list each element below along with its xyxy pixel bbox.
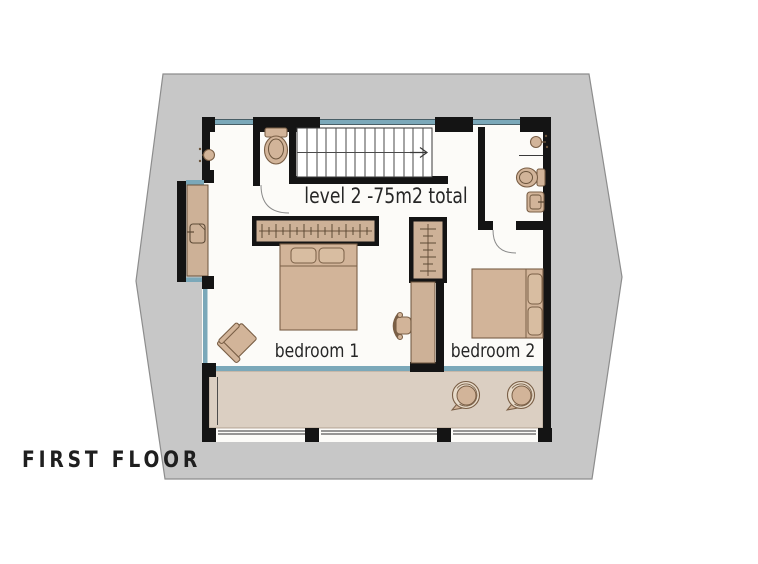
window-top-bath [473,120,520,125]
terrace-floor [209,371,543,428]
window-top-stairs [320,120,435,125]
desk [411,282,435,363]
level-label: level 2 -75m2 total [304,183,467,208]
wall-wc-divider [253,119,260,186]
wall-stair-left [289,119,296,179]
bathroom-toilet-icon [517,168,546,187]
wardrobe-bedroom2 [409,217,447,283]
glass-wall-terrace-left [216,366,410,371]
bedroom1-label: bedroom 1 [275,341,359,363]
page-title-group: FIRST FLOOR [22,447,201,473]
wall-bath-left [478,127,485,230]
bed-bedroom2 [472,269,543,338]
page-title: FIRST FLOOR [22,447,201,473]
glass-wall-left [203,289,208,367]
pillow [319,248,344,263]
bay-outer-wall [177,181,186,282]
pillow [528,274,542,304]
bedroom1-label-group: bedroom 1 [275,341,359,363]
wall-right [543,119,551,442]
wall-bedroom-divider [436,280,444,372]
bedroom2-label: bedroom 2 [451,341,535,363]
floor-plan-page: level 2 -75m2 total bedroom 1 bedroom 2 … [0,0,758,564]
bed-bedroom1 [280,244,357,330]
level-label-group: level 2 -75m2 total [304,183,467,208]
window-top-left [215,120,253,125]
wc-toilet [265,128,288,164]
floor-plan-canvas: level 2 -75m2 total bedroom 1 bedroom 2 … [0,0,758,564]
bathroom-sink-icon [527,192,544,212]
bay-window-top [186,180,204,185]
bay-window-bottom [186,278,204,283]
pillow [291,248,316,263]
pillow [528,307,542,335]
stairs [297,128,432,177]
glass-wall-terrace-right [444,366,543,371]
wardrobe-bedroom1 [252,216,379,246]
wall-bath-bottom [516,221,551,230]
bedroom2-label-group: bedroom 2 [451,341,535,363]
